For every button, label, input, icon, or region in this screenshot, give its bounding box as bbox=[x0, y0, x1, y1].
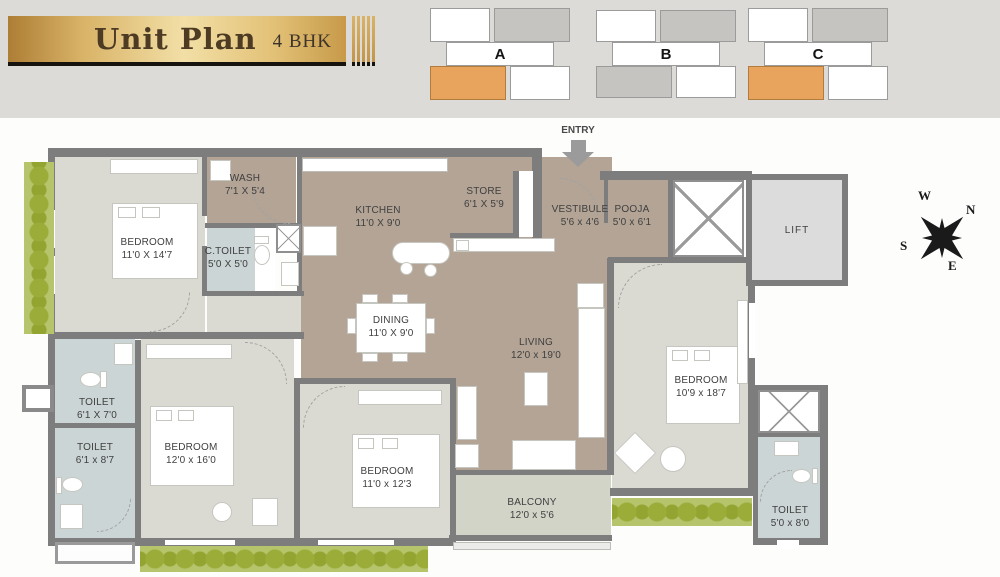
compass-w: W bbox=[918, 188, 931, 204]
pillow bbox=[694, 350, 710, 361]
hedge-trees bbox=[140, 546, 428, 572]
hedge-trees bbox=[24, 162, 54, 334]
key-plan-wing-shaded bbox=[812, 8, 888, 42]
window bbox=[165, 540, 235, 545]
wall bbox=[294, 378, 456, 384]
armchair bbox=[455, 444, 479, 468]
entry-arrow-icon bbox=[571, 140, 586, 152]
key-plan-c: C bbox=[748, 8, 888, 100]
banner-stripe bbox=[352, 16, 355, 66]
wardrobe bbox=[358, 390, 442, 405]
stool bbox=[424, 264, 437, 277]
title-banner: Unit Plan 4 BHK bbox=[8, 16, 346, 62]
key-plan-label-b: B bbox=[612, 42, 720, 66]
window bbox=[318, 540, 394, 545]
room-label-balcony: BALCONY12'0 x 5'6 bbox=[482, 496, 582, 522]
room-label-bedroom3: BEDROOM11'0 x 12'3 bbox=[337, 465, 437, 491]
chair bbox=[252, 498, 278, 526]
pillow bbox=[358, 438, 374, 449]
room-label-bedroom2: BEDROOM12'0 x 16'0 bbox=[141, 441, 241, 467]
lift-room: LIFT bbox=[746, 174, 848, 286]
wall-notch bbox=[777, 540, 799, 549]
compass-s: S bbox=[900, 238, 907, 254]
balcony-railing-band bbox=[453, 542, 611, 550]
hedge-trees bbox=[612, 498, 752, 526]
entry-arrow-icon bbox=[562, 152, 594, 167]
wall bbox=[607, 258, 614, 475]
compass-n: N bbox=[966, 202, 975, 218]
banner-underline bbox=[8, 62, 346, 66]
dining-chair bbox=[347, 318, 356, 334]
wall bbox=[135, 340, 141, 538]
dining-chair bbox=[426, 318, 435, 334]
compass-rose: W N S E bbox=[890, 186, 994, 290]
wardrobe bbox=[737, 300, 748, 384]
key-plan-wing-shaded bbox=[660, 10, 736, 42]
key-plan-wing-shaded bbox=[494, 8, 570, 42]
key-plan-wing bbox=[748, 8, 808, 42]
pillow bbox=[672, 350, 688, 361]
banner-stripe bbox=[362, 16, 365, 66]
room-label-ctoilet: C.TOILET5'0 X 5'0 bbox=[178, 245, 278, 271]
wall bbox=[608, 257, 748, 263]
room-label-lift: LIFT bbox=[785, 225, 810, 236]
key-plan-wing bbox=[596, 10, 656, 42]
wall bbox=[449, 535, 612, 541]
wall bbox=[48, 332, 304, 339]
key-plan-a: A bbox=[430, 8, 570, 100]
wc-tank bbox=[100, 371, 107, 388]
basin-icon bbox=[114, 343, 133, 365]
wc-icon bbox=[62, 477, 83, 492]
room-label-toilet3: TOILET5'0 x 8'0 bbox=[740, 504, 840, 530]
window bbox=[749, 303, 755, 358]
dining-chair bbox=[362, 294, 378, 303]
key-plan-wing bbox=[430, 8, 490, 42]
wall bbox=[453, 470, 611, 475]
key-plan-wing bbox=[676, 66, 736, 98]
key-plan-wing bbox=[828, 66, 888, 100]
wall bbox=[600, 171, 752, 180]
sofa bbox=[578, 308, 605, 438]
key-plan-wing-shaded bbox=[596, 66, 672, 98]
sofa bbox=[512, 440, 576, 470]
pillow bbox=[382, 438, 398, 449]
room-label-dining: DINING11'0 X 9'0 bbox=[356, 314, 426, 340]
dining-chair bbox=[392, 294, 408, 303]
wall bbox=[55, 423, 137, 428]
stove bbox=[456, 240, 469, 251]
dining-chair bbox=[362, 353, 378, 362]
wardrobe bbox=[146, 344, 232, 359]
unit-plan-page: Unit Plan 4 BHK A B C bbox=[0, 0, 1000, 577]
cabinet bbox=[577, 283, 604, 308]
shaft-x-icon bbox=[758, 390, 820, 433]
bedroom1-nook-floor bbox=[207, 296, 301, 332]
rug bbox=[660, 446, 686, 472]
basin-icon bbox=[774, 441, 799, 456]
room-label-store: STORE6'1 X 5'9 bbox=[434, 185, 534, 211]
key-plan-label-c: C bbox=[764, 42, 872, 66]
basin-icon bbox=[60, 504, 83, 529]
room-label-wash: WASH7'1 X 5'4 bbox=[195, 172, 295, 198]
wc-icon bbox=[792, 469, 811, 483]
wc-icon bbox=[80, 372, 101, 387]
wardrobe bbox=[110, 159, 198, 174]
duct-x-icon bbox=[276, 224, 301, 253]
coffee-table bbox=[524, 372, 548, 406]
wc-tank bbox=[254, 236, 269, 244]
room-label-bedroom4: BEDROOM10'9 x 18'7 bbox=[651, 374, 751, 400]
banner-stripe bbox=[372, 16, 375, 66]
page-title: Unit Plan bbox=[94, 22, 257, 56]
room-label-kitchen: KITCHEN11'0 X 9'0 bbox=[328, 204, 428, 230]
kitchen-counter-window bbox=[302, 158, 448, 172]
ledge-box bbox=[55, 542, 135, 564]
stool bbox=[212, 502, 232, 522]
room-label-toilet2: TOILET6'1 x 8'7 bbox=[45, 441, 145, 467]
room-label-living: LIVING12'0 x 19'0 bbox=[486, 336, 586, 362]
pillow bbox=[178, 410, 194, 421]
key-plan-label-a: A bbox=[446, 42, 554, 66]
key-plan-unit-highlight bbox=[430, 66, 506, 100]
key-plan-b: B bbox=[596, 10, 736, 98]
pillow bbox=[156, 410, 172, 421]
wall bbox=[294, 384, 300, 538]
wc-tank bbox=[56, 477, 62, 494]
compass-e: E bbox=[948, 258, 957, 274]
room-label-pooja: POOJA5'0 x 6'1 bbox=[582, 203, 682, 229]
wall bbox=[610, 488, 756, 496]
counter-block bbox=[303, 226, 337, 256]
pillow bbox=[142, 207, 160, 218]
bhk-subtitle: 4 BHK bbox=[273, 25, 332, 53]
dining-chair bbox=[392, 353, 408, 362]
key-plan-wing bbox=[510, 66, 570, 100]
kitchen-sink bbox=[281, 262, 299, 286]
wc-tank bbox=[812, 468, 818, 484]
stool bbox=[400, 262, 413, 275]
room-label-toilet1: TOILET6'1 X 7'0 bbox=[47, 396, 147, 422]
pillow bbox=[118, 207, 136, 218]
banner-stripe bbox=[367, 16, 370, 66]
entry-label: ENTRY bbox=[550, 125, 606, 136]
banner-stripe bbox=[357, 16, 360, 66]
stair-shaft-x-icon bbox=[673, 180, 744, 257]
key-plan-unit-highlight bbox=[748, 66, 824, 100]
wall bbox=[48, 148, 542, 157]
tv-unit bbox=[457, 386, 477, 440]
wall bbox=[205, 291, 304, 296]
kitchen-island bbox=[392, 242, 450, 264]
wall bbox=[753, 433, 823, 437]
